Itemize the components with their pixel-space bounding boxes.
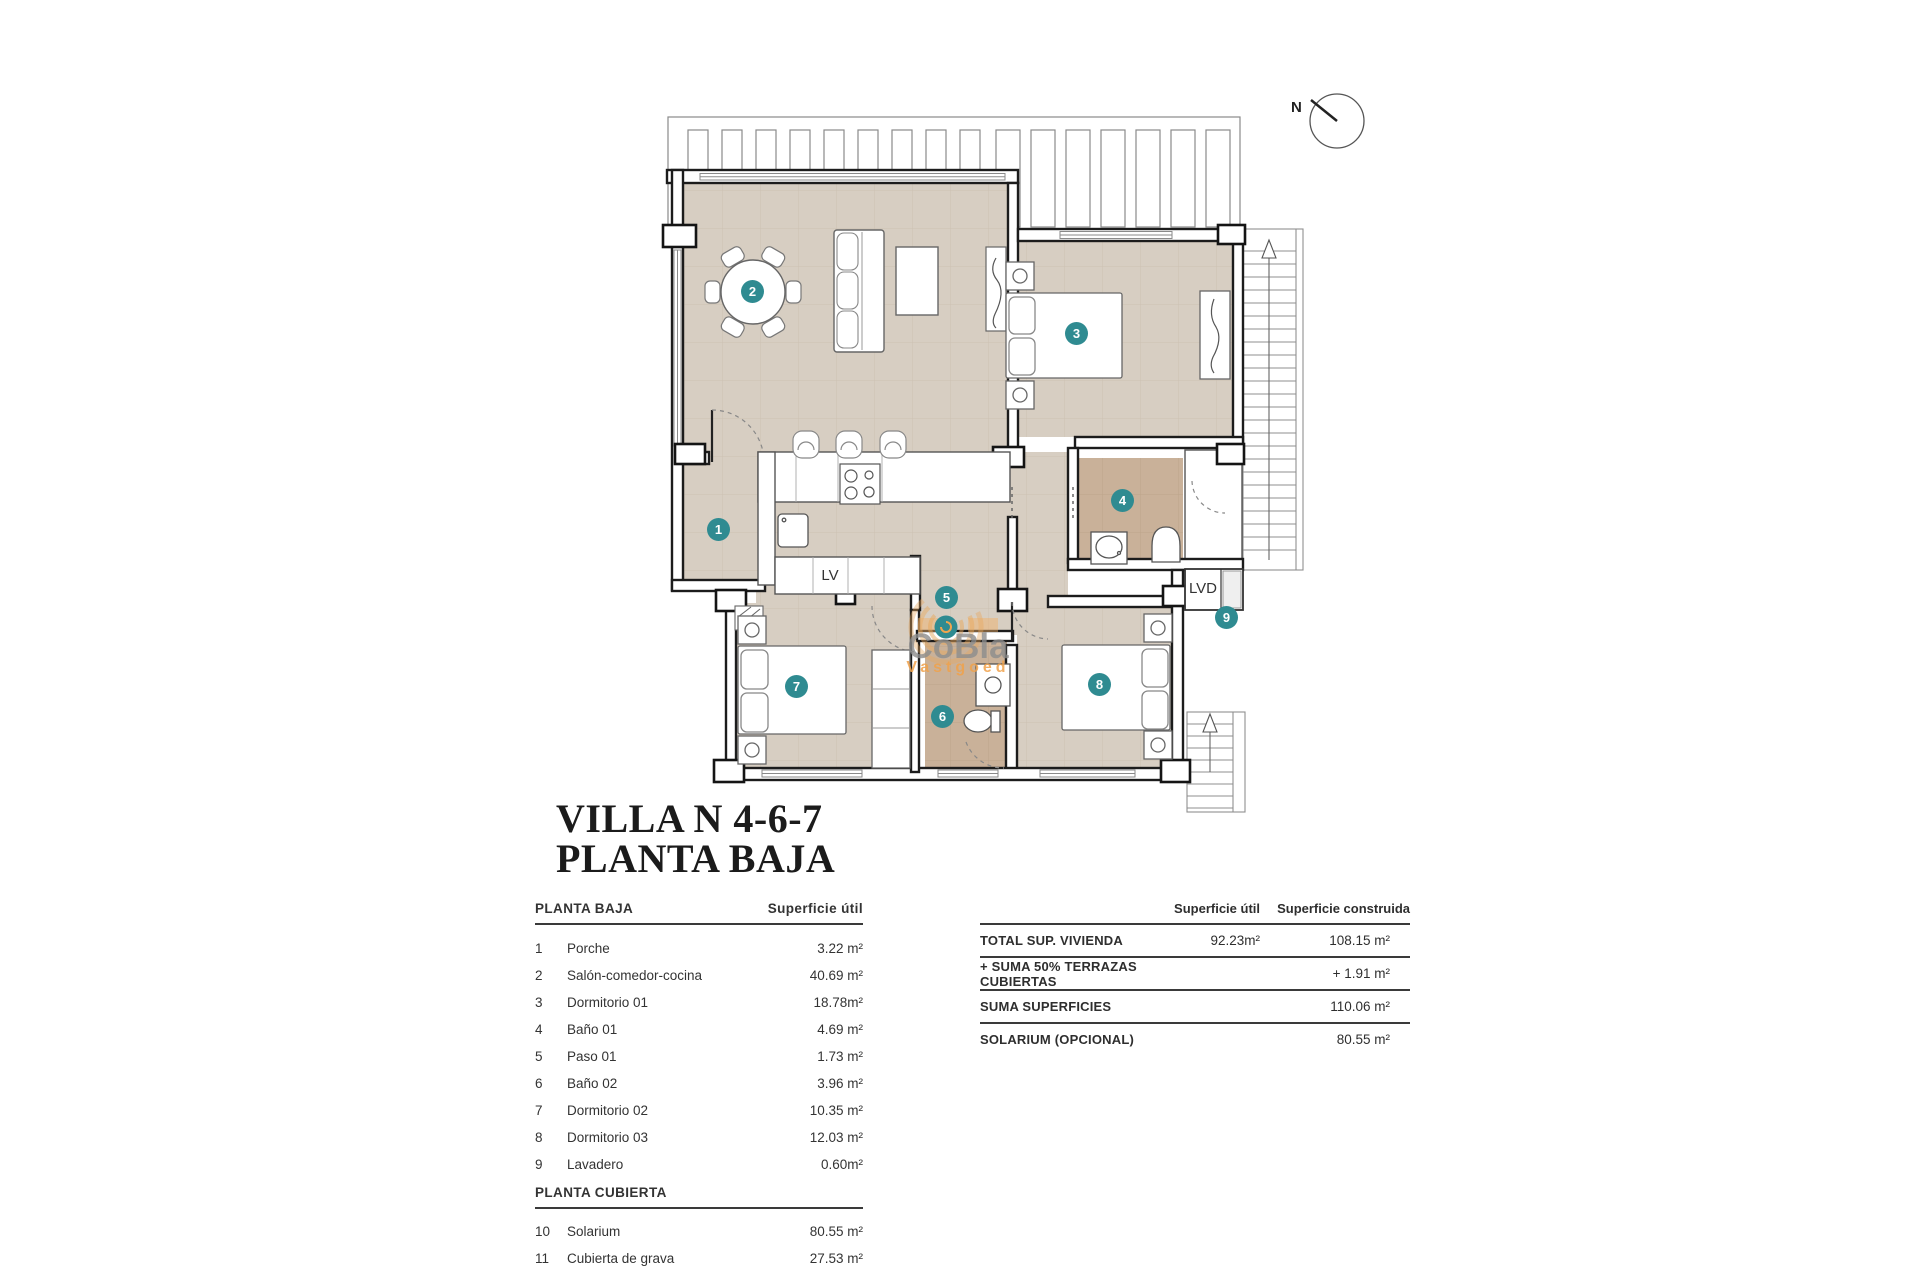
totals-built: 110.06 m² [1260,999,1410,1014]
room-marker-7: 7 [785,675,808,698]
section-ground-header: PLANTA BAJA [535,901,633,916]
totals-built: 108.15 m² [1260,933,1410,948]
laundry-label: LVD [1183,580,1223,598]
row-area: 3.22 m² [817,941,863,956]
col-header-util: Superficie útil [768,901,863,916]
totals-built: 80.55 m² [1260,1032,1410,1047]
row-area: 1.73 m² [817,1049,863,1064]
north-compass-icon [1310,94,1364,148]
shower-room [1185,450,1242,561]
totals-row: + SUMA 50% TERRAZAS CUBIERTAS + 1.91 m² [980,958,1410,991]
row-num: 3 [535,995,567,1010]
totals-row: SOLARIUM (OPCIONAL) 80.55 m² [980,1024,1410,1055]
totals-label: TOTAL SUP. VIVIENDA [980,933,1160,948]
row-name: Baño 02 [567,1076,817,1091]
totals-table-header: Superficie útil Superficie construida [980,901,1410,925]
row-name: Solarium [567,1224,810,1239]
table-row: 11Cubierta de grava27.53 m² [535,1245,863,1272]
totals-label: SOLARIUM (OPCIONAL) [980,1032,1160,1047]
room-marker-5: 5 [935,586,958,609]
table-row: 2Salón-comedor-cocina40.69 m² [535,962,863,989]
staircase-top [1243,229,1303,570]
totals-built: + 1.91 m² [1260,966,1410,981]
room-marker-3: 3 [1065,322,1088,345]
row-num: 6 [535,1076,567,1091]
north-label: N [1291,100,1302,116]
room-marker-8: 8 [1088,673,1111,696]
row-area: 18.78m² [813,995,863,1010]
row-num: 1 [535,941,567,956]
totals-row: TOTAL SUP. VIVIENDA 92.23m² 108.15 m² [980,925,1410,958]
fridge-icon [778,514,808,547]
table-row: 10Solarium80.55 m² [535,1218,863,1245]
row-name: Porche [567,941,817,956]
room-marker-9: 9 [1215,606,1238,629]
table-row: 4Baño 014.69 m² [535,1016,863,1043]
room-marker-4: 4 [1111,489,1134,512]
room-marker-6: 6 [931,705,954,728]
row-area: 80.55 m² [810,1224,863,1239]
row-num: 2 [535,968,567,983]
col-header-util2: Superficie útil [1160,901,1260,916]
room-marker-2: 2 [741,280,764,303]
coffee-table [896,247,938,315]
row-num: 10 [535,1224,567,1239]
console-plant [986,247,1006,331]
table-row: 8Dormitorio 0312.03 m² [535,1124,863,1151]
surface-table: PLANTA BAJA Superficie útil 1Porche3.22 … [535,901,863,1272]
title-line2: PLANTA BAJA [556,839,835,879]
totals-label: SUMA SUPERFICIES [980,999,1160,1014]
bar-stools [793,431,906,458]
row-name: Paso 01 [567,1049,817,1064]
row-area: 4.69 m² [817,1022,863,1037]
title-line1: VILLA N 4-6-7 [556,799,835,839]
watermark-tagline: Vastgoed [874,659,1042,677]
cooktop-icon [840,464,880,504]
row-num: 7 [535,1103,567,1118]
row-area: 27.53 m² [810,1251,863,1266]
surface-table-header: PLANTA BAJA Superficie útil [535,901,863,925]
table-row: 6Baño 023.96 m² [535,1070,863,1097]
row-num: 5 [535,1049,567,1064]
col-header-built: Superficie construida [1260,901,1410,916]
table-row: 1Porche3.22 m² [535,935,863,962]
row-num: 11 [535,1251,567,1266]
room-marker-1: 1 [707,518,730,541]
row-area: 10.35 m² [810,1103,863,1118]
table-row: 9Lavadero0.60m² [535,1151,863,1178]
page-title: VILLA N 4-6-7 PLANTA BAJA [556,799,835,879]
section-roof-header: PLANTA CUBIERTA [535,1180,863,1209]
row-num: 9 [535,1157,567,1172]
staircase-bottom [1187,712,1245,812]
table-row: 3Dormitorio 0118.78m² [535,989,863,1016]
dishwasher-label: LV [810,567,850,585]
table-row: 5Paso 011.73 m² [535,1043,863,1070]
row-num: 4 [535,1022,567,1037]
row-name: Salón-comedor-cocina [567,968,810,983]
row-name: Dormitorio 02 [567,1103,810,1118]
totals-table: Superficie útil Superficie construida TO… [980,901,1410,1055]
row-area: 40.69 m² [810,968,863,983]
sofa [834,230,884,352]
floorplan-page: N LV LVD 1 2 3 4 5 6 7 8 9 CoBla Vastgoe… [0,0,1920,1280]
row-area: 12.03 m² [810,1130,863,1145]
row-name: Baño 01 [567,1022,817,1037]
row-name: Dormitorio 03 [567,1130,810,1145]
totals-label: + SUMA 50% TERRAZAS CUBIERTAS [980,959,1160,989]
row-name: Cubierta de grava [567,1251,810,1266]
row-name: Dormitorio 01 [567,995,813,1010]
row-name: Lavadero [567,1157,821,1172]
row-area: 0.60m² [821,1157,863,1172]
row-num: 8 [535,1130,567,1145]
totals-util: 92.23m² [1160,933,1260,948]
table-row: 7Dormitorio 0210.35 m² [535,1097,863,1124]
totals-row: SUMA SUPERFICIES 110.06 m² [980,991,1410,1024]
row-area: 3.96 m² [817,1076,863,1091]
